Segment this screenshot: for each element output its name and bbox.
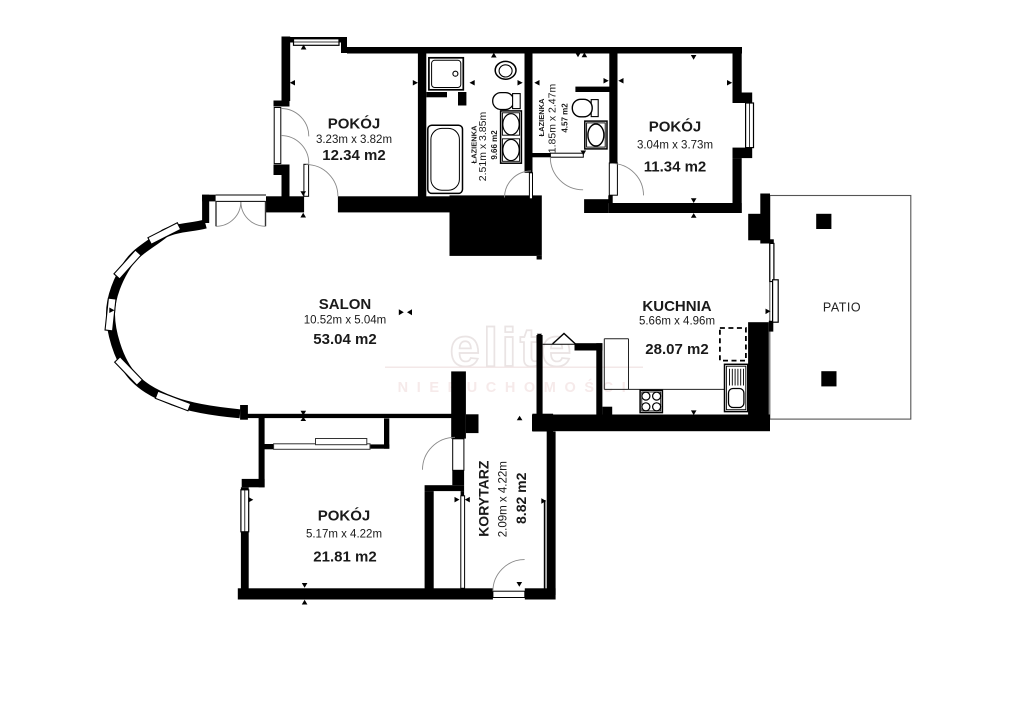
- svg-text:3.04m x 3.73m: 3.04m x 3.73m: [637, 140, 713, 152]
- svg-text:11.34 m2: 11.34 m2: [644, 158, 707, 175]
- svg-text:SALON: SALON: [319, 296, 372, 313]
- svg-text:KORYTARZ: KORYTARZ: [475, 460, 491, 537]
- svg-text:2.51m x 3.85m: 2.51m x 3.85m: [477, 112, 489, 182]
- svg-text:5.66m x 4.96m: 5.66m x 4.96m: [639, 316, 715, 328]
- svg-text:POKÓJ: POKÓJ: [649, 117, 702, 135]
- svg-text:10.52m x 5.04m: 10.52m x 5.04m: [304, 315, 386, 327]
- svg-text:9.66 m2: 9.66 m2: [490, 130, 499, 160]
- svg-text:4.57 m2: 4.57 m2: [561, 103, 570, 133]
- svg-text:KUCHNIA: KUCHNIA: [642, 298, 711, 315]
- svg-text:53.04 m2: 53.04 m2: [313, 331, 376, 348]
- svg-text:8.82 m2: 8.82 m2: [513, 472, 529, 524]
- svg-text:ŁAZIENKA: ŁAZIENKA: [537, 98, 546, 136]
- svg-text:1.85m x 2.47m: 1.85m x 2.47m: [547, 84, 559, 154]
- svg-text:POKÓJ: POKÓJ: [318, 506, 371, 524]
- svg-text:PATIO: PATIO: [823, 300, 861, 314]
- svg-text:elite: elite: [449, 316, 574, 378]
- svg-text:21.81 m2: 21.81 m2: [313, 548, 376, 565]
- svg-text:28.07 m2: 28.07 m2: [645, 341, 708, 358]
- svg-text:12.34 m2: 12.34 m2: [322, 147, 385, 164]
- svg-text:3.23m x 3.82m: 3.23m x 3.82m: [316, 134, 392, 146]
- svg-text:POKÓJ: POKÓJ: [328, 114, 381, 132]
- svg-text:2.09m x 4.22m: 2.09m x 4.22m: [498, 461, 510, 537]
- svg-text:5.17m x 4.22m: 5.17m x 4.22m: [306, 529, 382, 541]
